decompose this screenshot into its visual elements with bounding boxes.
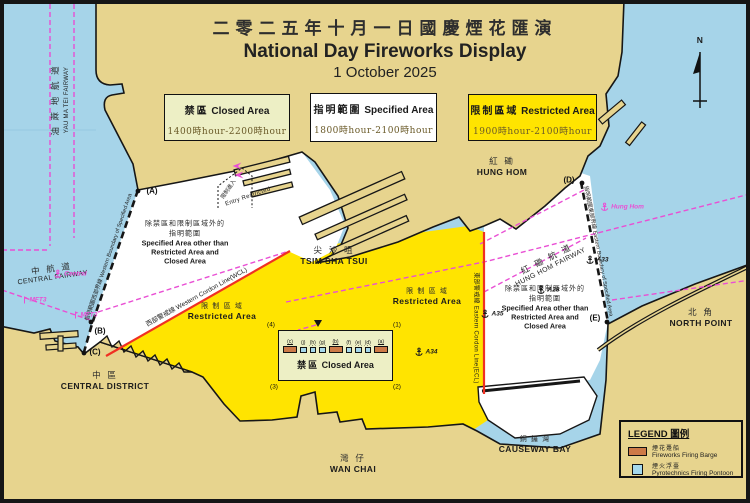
pontoon-symbol bbox=[355, 347, 362, 354]
point-e-dot bbox=[605, 320, 610, 325]
map-title-block: 二零二五年十月一日國慶煙花匯演 National Day Fireworks D… bbox=[150, 14, 620, 81]
closed-area-map-label-zh: 禁區 bbox=[297, 361, 319, 371]
fireworks-display-notice-map: 油 蔴 地 航 道YAU MA TEI FAIRWAY中 航 道CENTRAL … bbox=[0, 0, 750, 503]
specified-area-name-en: Specified Area bbox=[364, 105, 433, 116]
pontoon-symbol bbox=[300, 347, 307, 354]
closed-area-name: 禁區 Closed Area bbox=[165, 102, 289, 117]
restricted-area-hours: 1900時hour-2100時hour bbox=[469, 124, 596, 137]
closed-area-map-label-en: Closed Area bbox=[322, 360, 374, 370]
pyrotechnics-pontoon-swatch bbox=[632, 464, 643, 475]
point-d-dot bbox=[580, 181, 585, 186]
firing-position-barge: (c) bbox=[283, 339, 297, 353]
pontoon-symbol bbox=[319, 347, 326, 354]
firing-position-barge: (a) bbox=[374, 339, 388, 353]
firing-position-pontoon: (g) bbox=[319, 340, 326, 354]
closed-area-hours: 1400時hour-2200時hour bbox=[165, 124, 289, 137]
closed-area-name-en: Closed Area bbox=[211, 106, 269, 117]
legend-pontoon-zh: 煙火浮臺 bbox=[652, 461, 733, 470]
firing-position-pontoon: (d) bbox=[365, 340, 372, 354]
barge-symbol bbox=[283, 346, 297, 353]
title-date: 1 October 2025 bbox=[150, 64, 620, 81]
barge-symbol bbox=[329, 346, 343, 353]
legend-item-barge: 煙花躉船 Fireworks Firing Barge bbox=[628, 443, 741, 459]
point-a-dot bbox=[136, 189, 141, 194]
closed-area-time-box: 禁區 Closed Area 1400時hour-2200時hour bbox=[164, 94, 290, 141]
point-c-dot bbox=[82, 351, 87, 356]
pontoon-symbol bbox=[346, 347, 353, 354]
fireworks-barge-swatch bbox=[628, 447, 647, 456]
specified-area-hours: 1800時hour-2100時hour bbox=[311, 123, 436, 136]
pontoon-symbol bbox=[310, 347, 317, 354]
firing-positions-row: (c)(j)(h)(g)(b)(f)(e)(d)(a) bbox=[279, 337, 392, 353]
closed-area-name-zh: 禁區 bbox=[185, 106, 209, 117]
restricted-area-name: 限制區域 Restricted Area bbox=[469, 102, 596, 117]
restricted-area-time-box: 限制區域 Restricted Area 1900時hour-2100時hour bbox=[468, 94, 597, 141]
specified-area-name: 指明範圍 Specified Area bbox=[311, 101, 436, 116]
legend-barge-en: Fireworks Firing Barge bbox=[652, 452, 717, 459]
firing-position-pontoon: (e) bbox=[355, 340, 362, 354]
legend-title: LEGEND 圖例 bbox=[628, 426, 741, 440]
specified-area-time-box: 指明範圍 Specified Area 1800時hour-2100時hour bbox=[310, 93, 437, 142]
title-chinese: 二零二五年十月一日國慶煙花匯演 bbox=[150, 14, 620, 39]
restricted-area-name-en: Restricted Area bbox=[521, 106, 595, 117]
legend-barge-zh: 煙花躉船 bbox=[652, 443, 717, 452]
closed-area-map-label: 禁區 Closed Area bbox=[279, 358, 392, 371]
specified-area-name-zh: 指明範圍 bbox=[314, 105, 362, 116]
legend-pontoon-en: Pyrotechnics Firing Pontoon bbox=[652, 470, 733, 477]
barge-symbol bbox=[374, 346, 388, 353]
firing-position-pontoon: (h) bbox=[310, 340, 317, 354]
legend-box: LEGEND 圖例 煙花躉船 Fireworks Firing Barge 煙火… bbox=[619, 420, 743, 478]
closed-area-map-box: (c)(j)(h)(g)(b)(f)(e)(d)(a) 禁區 Closed Ar… bbox=[278, 330, 393, 381]
firing-position-pontoon: (j) bbox=[300, 340, 307, 354]
restricted-area-name-zh: 限制區域 bbox=[470, 106, 518, 117]
point-b-dot bbox=[89, 320, 94, 325]
firing-position-pontoon: (f) bbox=[346, 340, 353, 354]
title-english: National Day Fireworks Display bbox=[150, 41, 620, 63]
firing-position-barge: (b) bbox=[329, 339, 343, 353]
pontoon-symbol bbox=[365, 347, 372, 354]
legend-item-pontoon: 煙火浮臺 Pyrotechnics Firing Pontoon bbox=[628, 461, 741, 477]
